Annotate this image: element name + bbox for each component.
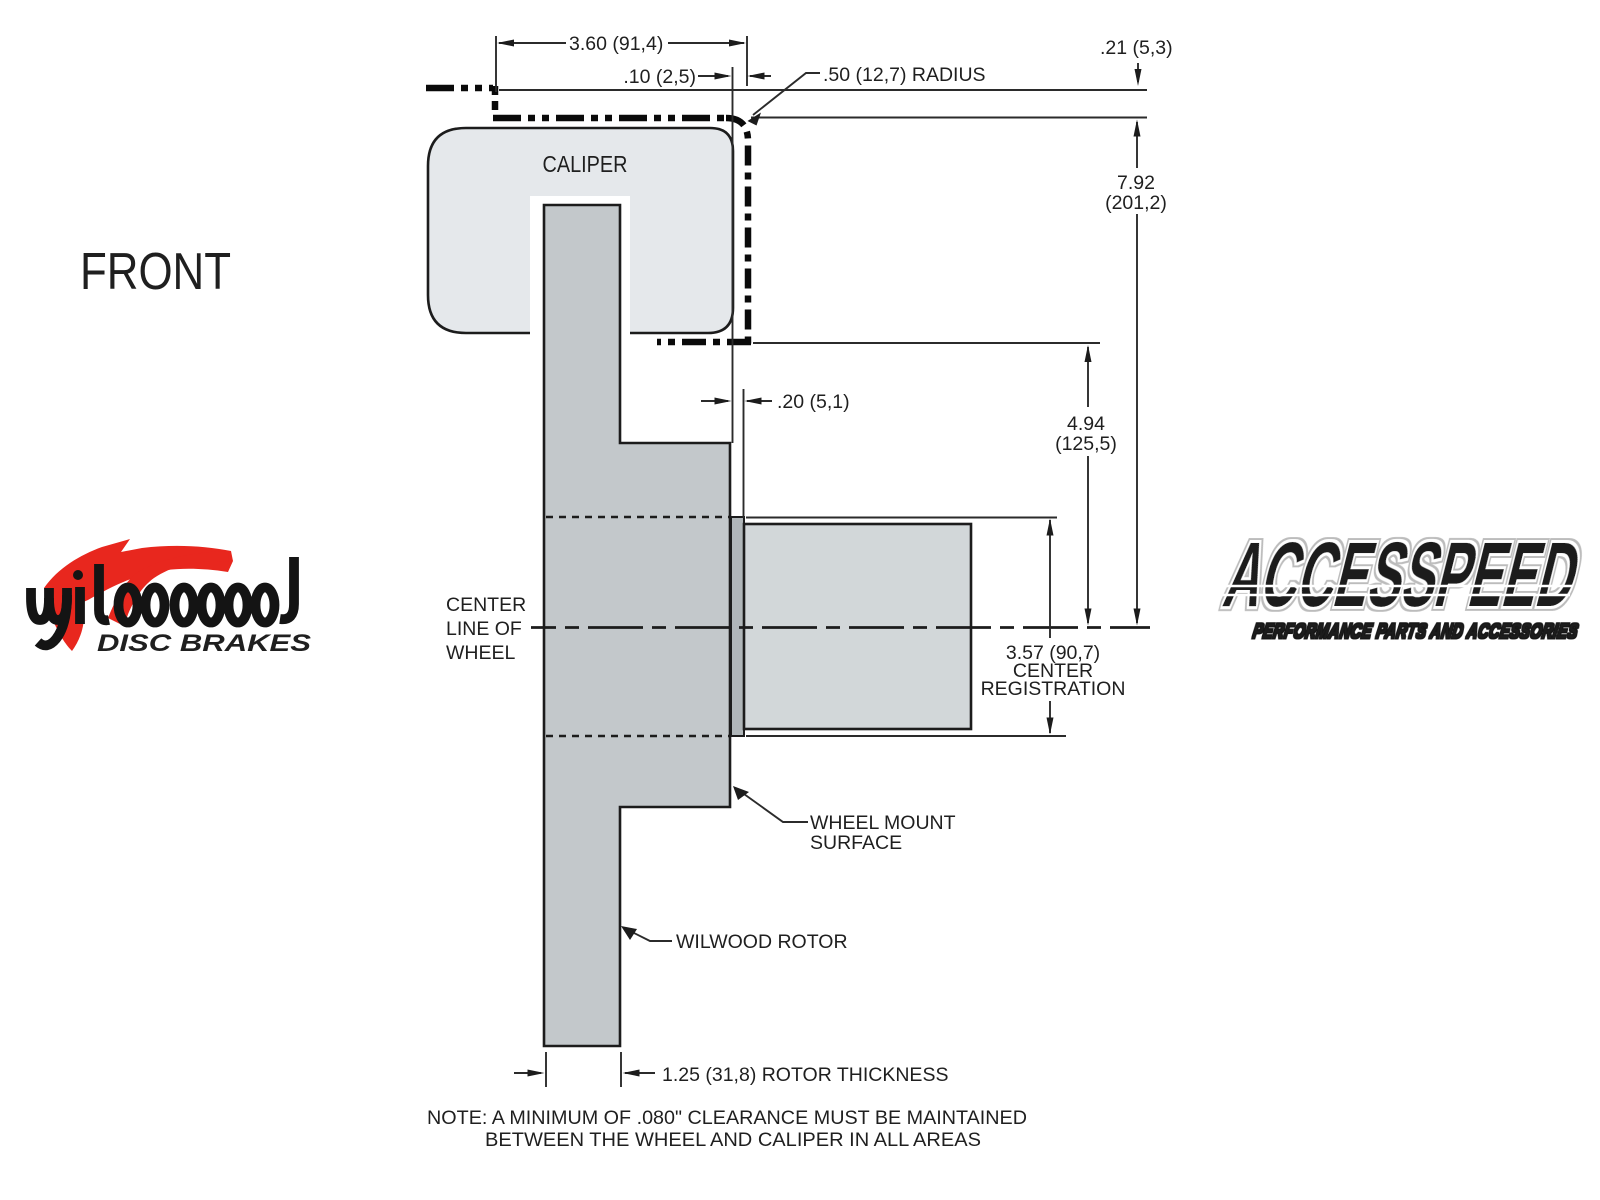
svg-text:.10 (2,5): .10 (2,5)	[623, 66, 696, 88]
svg-text:PERFORMANCE PARTS AND ACCESSOR: PERFORMANCE PARTS AND ACCESSORIES	[1251, 619, 1580, 643]
svg-text:WILWOOD ROTOR: WILWOOD ROTOR	[676, 931, 848, 953]
svg-text:SURFACE: SURFACE	[810, 832, 902, 854]
svg-text:4.94: 4.94	[1067, 413, 1105, 435]
svg-text:FRONT: FRONT	[80, 243, 231, 301]
svg-text:NOTE: A MINIMUM OF .080" CLEAR: NOTE: A MINIMUM OF .080" CLEARANCE MUST …	[427, 1107, 1027, 1129]
svg-text:(125,5): (125,5)	[1055, 433, 1117, 455]
svg-text:.50 (12,7) RADIUS: .50 (12,7) RADIUS	[823, 64, 986, 86]
svg-text:REGISTRATION: REGISTRATION	[981, 678, 1126, 700]
svg-text:DISC BRAKES: DISC BRAKES	[97, 630, 311, 657]
svg-text:7.92: 7.92	[1117, 172, 1155, 194]
svg-text:CENTER: CENTER	[446, 594, 526, 616]
svg-text:CALIPER: CALIPER	[543, 151, 628, 177]
svg-text:BETWEEN THE WHEEL AND CALIPER: BETWEEN THE WHEEL AND CALIPER IN ALL ARE…	[485, 1129, 981, 1151]
svg-text:ACCESSPEED: ACCESSPEED	[1216, 524, 1590, 627]
svg-text:WHEEL: WHEEL	[446, 642, 516, 664]
svg-text:(201,2): (201,2)	[1105, 192, 1167, 214]
svg-text:LINE OF: LINE OF	[446, 618, 522, 640]
svg-text:.20 (5,1): .20 (5,1)	[777, 391, 850, 413]
svg-text:WHEEL MOUNT: WHEEL MOUNT	[810, 812, 956, 834]
svg-text:3.60 (91,4): 3.60 (91,4)	[569, 33, 663, 55]
svg-text:.21 (5,3): .21 (5,3)	[1100, 37, 1173, 59]
svg-text:1.25 (31,8) ROTOR THICKNESS: 1.25 (31,8) ROTOR THICKNESS	[662, 1064, 948, 1086]
